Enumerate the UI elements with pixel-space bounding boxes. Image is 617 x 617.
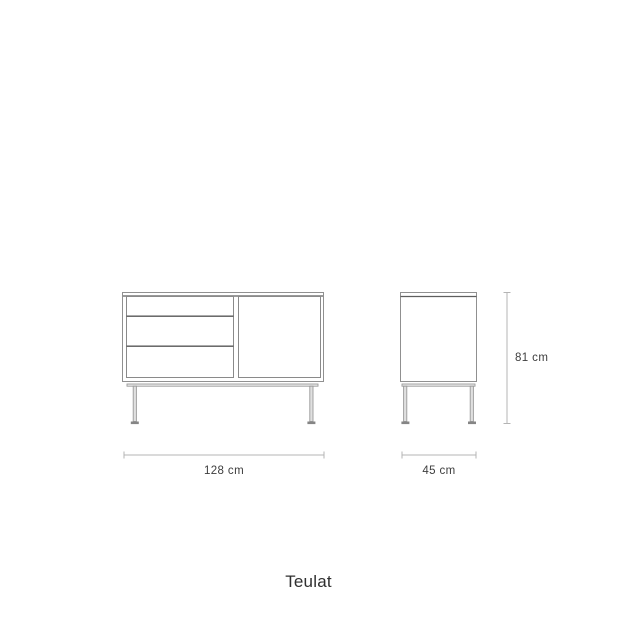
front-view-drawing [123, 293, 324, 425]
front-base-rail [127, 384, 318, 386]
side-base-rail [402, 384, 475, 386]
width-dimension-line [124, 452, 324, 459]
product-dimension-diagram: 128 cm 45 cm 81 cm Teulat [0, 0, 617, 617]
height-dimension-label: 81 cm [515, 351, 548, 365]
drawer-stack-outline [127, 297, 234, 378]
front-right-foot [307, 422, 315, 425]
side-view-drawing [401, 293, 477, 425]
side-left-foot [401, 422, 409, 425]
door-outline [239, 297, 321, 378]
technical-drawing [0, 0, 617, 617]
brand-wordmark: Teulat [0, 572, 617, 592]
side-left-leg [404, 386, 407, 421]
front-left-foot [131, 422, 139, 425]
depth-dimension-line [402, 452, 476, 459]
width-dimension-label: 128 cm [124, 464, 324, 478]
side-right-leg [470, 386, 473, 421]
front-right-leg [310, 386, 313, 421]
side-right-foot [468, 422, 476, 425]
height-dimension-line [504, 293, 511, 424]
depth-dimension-label: 45 cm [402, 464, 476, 478]
front-left-leg [133, 386, 136, 421]
side-carcass-outline [401, 293, 477, 382]
